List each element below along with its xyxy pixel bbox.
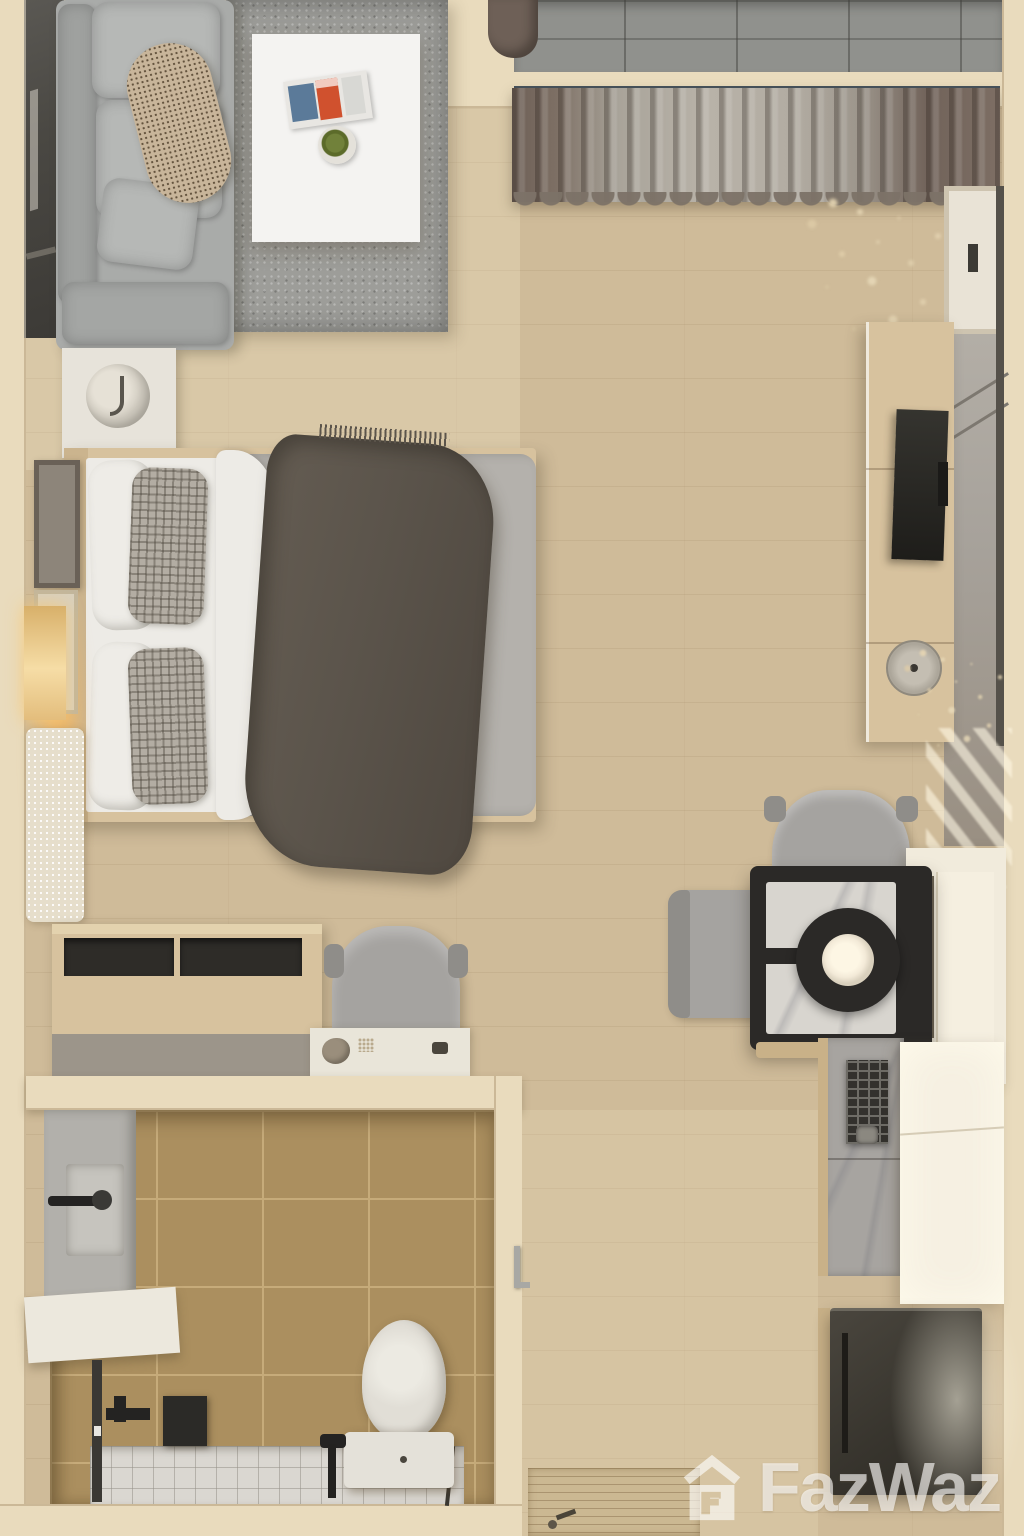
pendant-ring [796,908,900,1012]
fridge-handle [842,1333,848,1453]
coffee-table [252,34,420,242]
house-logo-icon [676,1451,748,1523]
shower-glass-edge [92,1360,102,1502]
kitchen-counter [828,1038,904,1276]
sofa-back-cushion [58,4,96,304]
vanity-panel [44,1110,136,1310]
nightstand [62,348,176,458]
watermark: FazWaz [676,1444,1024,1530]
tv-bracket [938,462,948,506]
wardrobe-gap [996,186,1004,746]
chair-armrest [324,944,344,978]
dried-plant-small [920,650,927,657]
pendant-bowl [822,934,874,986]
interior-wall-bathroom-top [26,1076,522,1110]
mat-pebble [548,1520,557,1529]
glass-hinge [94,1426,101,1436]
sideboard [52,924,322,1078]
sideboard-front [52,1034,322,1078]
chair-back [668,890,690,1018]
sideboard-slot [180,938,302,976]
chair-armrest [896,796,918,822]
tank-button [400,1456,407,1463]
door-handle-foot [514,1282,530,1288]
small-pot [856,1126,878,1144]
entry-door-handle [514,1246,520,1288]
decor-dark-item [432,1042,448,1054]
sofa [56,0,234,350]
wardrobe-door-white [944,186,1004,334]
doormat [528,1468,700,1536]
window-glass-reflection [30,89,38,212]
decor-stone [322,1038,350,1064]
faucet-knob [92,1190,112,1210]
tall-cabinet [900,1042,1004,1304]
chair-armrest [764,796,786,822]
decor-sprig [358,1038,374,1052]
outer-wall-bottom [0,1504,522,1536]
accent-light-bar [24,606,66,720]
desk-chair [332,926,460,1042]
toilet-tank [344,1432,454,1488]
checkered-pillow [127,467,208,626]
magazine-stack [283,70,373,129]
door-handle-dark [968,244,978,272]
floorplan-render: FazWaz [0,0,1024,1536]
potted-plant [318,126,356,164]
bathroom [26,1110,494,1504]
counter-seam [828,1158,904,1160]
balcony-floor [512,0,1004,74]
tv-console [866,322,954,742]
runner-rug [26,728,84,922]
magazine-gray [341,75,366,115]
mat-twig [556,1509,577,1521]
console-shelf [310,1028,470,1076]
blanket-fringe [319,424,450,447]
decor-tray [886,640,942,696]
vanity-counter [24,1287,180,1363]
kitchenette [800,1030,1024,1510]
sideboard-top-rim [52,924,322,934]
sofa-seat-cushion [62,282,228,344]
island-door-panel [936,872,994,1044]
checkered-pillow [127,647,208,806]
cabinet-seam [900,1126,1004,1135]
wall-art [34,460,80,588]
shower-arm [106,1408,150,1420]
sideboard-slot [64,938,174,976]
dark-throw-blanket [239,433,498,878]
window-frame-bar [26,246,57,259]
tv-wall [780,180,1024,800]
interior-wall-bathroom-right [494,1076,522,1504]
watermark-brand: FazWaz [758,1447,1000,1527]
magazine-orange [315,78,342,121]
shower-arm-joint [114,1396,126,1422]
dining-table [750,866,932,1050]
chair-armrest [448,944,468,978]
toilet [362,1320,446,1440]
balcony [448,0,1008,210]
sprayer-hose [328,1444,336,1498]
shower-mixer-panel [163,1396,207,1446]
dried-plant [829,199,838,208]
tray-dot [910,664,918,672]
vanity-sink [66,1164,124,1256]
magazine-blue [288,83,319,122]
